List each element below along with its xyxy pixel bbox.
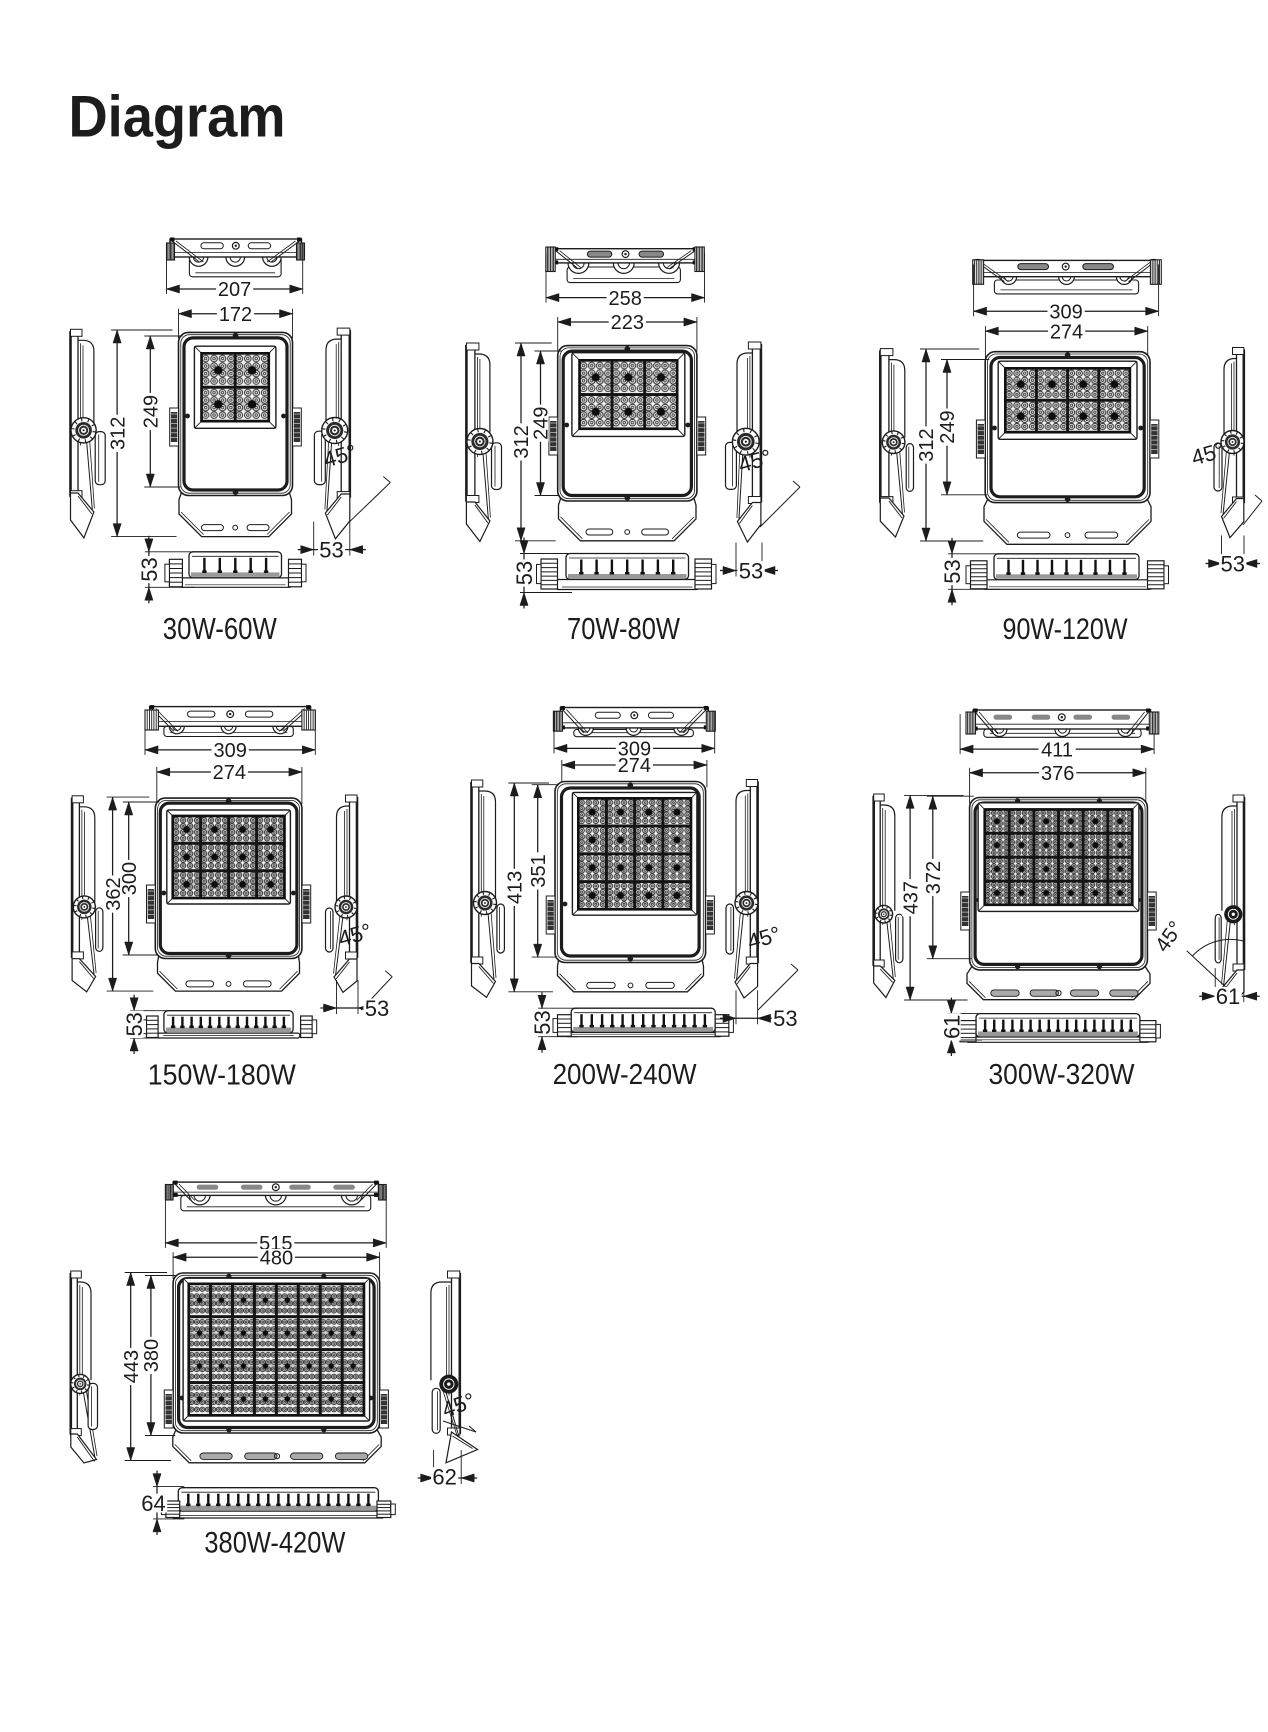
svg-text:258: 258 <box>609 288 642 310</box>
svg-text:53: 53 <box>319 538 343 563</box>
svg-text:53: 53 <box>365 996 389 1021</box>
svg-text:312: 312 <box>107 417 129 450</box>
svg-text:53: 53 <box>739 558 763 583</box>
svg-text:372: 372 <box>923 861 945 894</box>
svg-text:90W-120W: 90W-120W <box>1003 613 1129 646</box>
svg-text:413: 413 <box>505 871 527 904</box>
svg-text:411: 411 <box>1041 739 1073 761</box>
svg-text:30W-60W: 30W-60W <box>163 611 278 646</box>
svg-text:53: 53 <box>512 561 537 585</box>
svg-text:Diagram: Diagram <box>69 84 286 149</box>
svg-text:200W-240W: 200W-240W <box>553 1059 698 1091</box>
svg-text:207: 207 <box>218 279 251 301</box>
svg-text:249: 249 <box>531 407 553 440</box>
svg-text:380: 380 <box>141 1339 163 1372</box>
svg-text:249: 249 <box>141 395 163 428</box>
svg-text:274: 274 <box>618 755 651 777</box>
svg-text:53: 53 <box>773 1006 797 1031</box>
svg-text:351: 351 <box>528 854 550 887</box>
svg-text:150W-180W: 150W-180W <box>148 1060 297 1092</box>
svg-text:53: 53 <box>940 559 965 583</box>
svg-text:274: 274 <box>1050 321 1083 343</box>
svg-text:53: 53 <box>122 1012 147 1036</box>
svg-text:437: 437 <box>900 881 922 914</box>
svg-text:480: 480 <box>260 1247 293 1269</box>
svg-text:172: 172 <box>219 304 252 326</box>
svg-text:61: 61 <box>939 1015 964 1039</box>
svg-text:309: 309 <box>1049 301 1082 323</box>
svg-text:249: 249 <box>937 410 959 443</box>
svg-text:53: 53 <box>137 557 162 581</box>
svg-text:309: 309 <box>214 740 247 762</box>
svg-text:274: 274 <box>213 762 246 784</box>
svg-text:380W-420W: 380W-420W <box>204 1527 346 1560</box>
svg-text:443: 443 <box>121 1350 143 1383</box>
svg-text:62: 62 <box>432 1465 456 1490</box>
svg-text:53: 53 <box>1220 551 1244 576</box>
svg-text:61: 61 <box>1216 984 1240 1009</box>
svg-text:300W-320W: 300W-320W <box>989 1059 1136 1091</box>
svg-text:53: 53 <box>530 1010 555 1034</box>
svg-text:64: 64 <box>141 1491 165 1516</box>
svg-text:312: 312 <box>916 428 938 461</box>
svg-text:223: 223 <box>611 312 644 334</box>
svg-text:376: 376 <box>1041 763 1074 785</box>
svg-text:70W-80W: 70W-80W <box>567 611 681 646</box>
svg-text:300: 300 <box>119 862 141 895</box>
